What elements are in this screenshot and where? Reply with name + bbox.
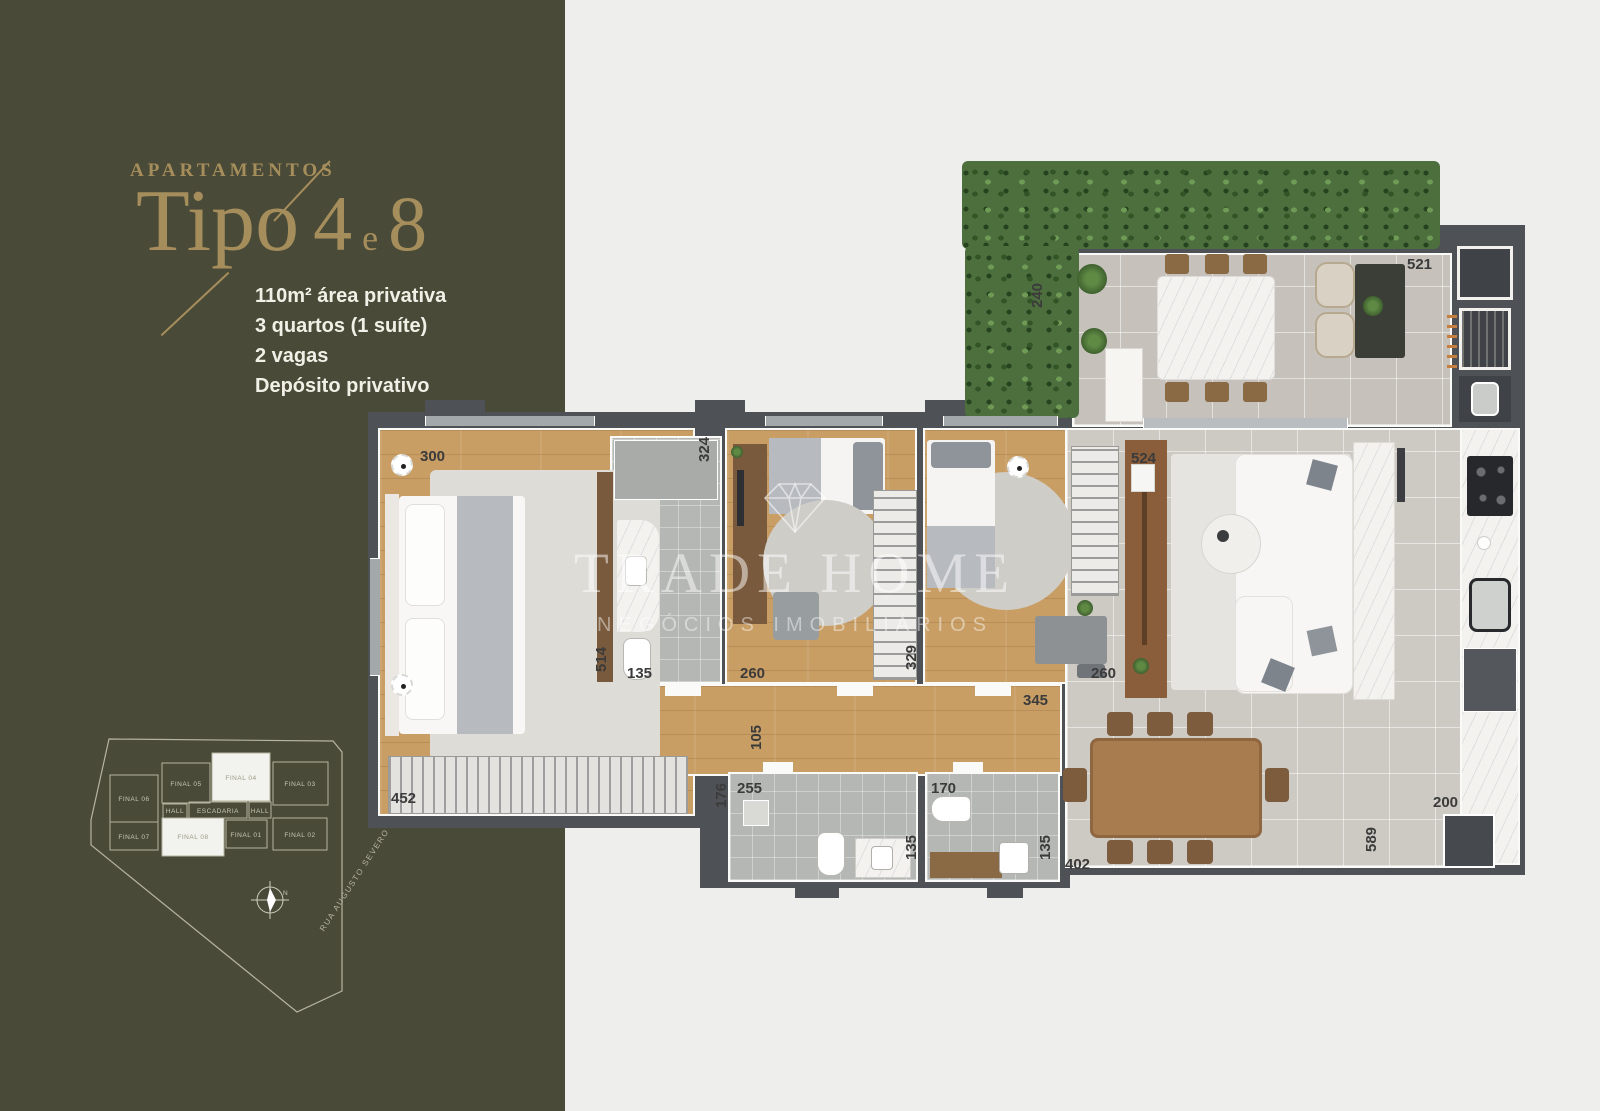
lounge-chair — [1315, 262, 1355, 308]
wardrobe-run — [388, 756, 688, 814]
keyplan-hall-label: HALL — [251, 808, 269, 815]
shower-head — [743, 800, 769, 826]
desk — [1035, 616, 1107, 664]
dimension-label: 345 — [1023, 692, 1048, 709]
bench — [773, 592, 819, 640]
window-bedroom-3 — [943, 416, 1058, 426]
dimension-label: 300 — [420, 448, 445, 465]
keyplan-hall-label: HALL — [166, 808, 184, 815]
plant-icon — [1081, 328, 1107, 354]
bed-headboard — [385, 494, 399, 736]
terrace-chair — [1165, 382, 1189, 402]
keyplan-stairs-label: ESCADARIA — [197, 808, 239, 815]
hedge-planter-top — [962, 161, 1440, 249]
dimension-label: 176 — [713, 783, 730, 808]
dimension-label: 260 — [740, 665, 765, 682]
plant-icon — [1077, 264, 1107, 294]
hedge-planter-left — [965, 246, 1079, 418]
floor-plan: TRADE HOME NEGÓCIOS IMOBILIÁRIOS 3003245… — [365, 160, 1525, 890]
dining-chair — [1265, 768, 1289, 802]
oven-cabinet — [1463, 648, 1517, 712]
terrace-chair — [1205, 254, 1229, 274]
dining-table — [1090, 738, 1262, 838]
dimension-label: 135 — [627, 665, 652, 682]
keyplan-unit-label: FINAL 07 — [118, 834, 149, 841]
window-suite-side — [370, 558, 380, 676]
terrace-table — [1157, 276, 1275, 380]
wall-stub — [425, 400, 485, 414]
wall-stub — [695, 400, 745, 414]
toilet — [931, 796, 971, 822]
plant-icon — [1363, 296, 1383, 316]
dining-chair — [1063, 768, 1087, 802]
wall-stub — [795, 886, 839, 898]
fireplace-strip — [1397, 448, 1405, 502]
dimension-label: 105 — [748, 725, 765, 750]
accent-diagonal-line-bottom — [161, 272, 230, 336]
sideboard — [1353, 442, 1395, 700]
keyplan-unit-label: FINAL 05 — [170, 781, 201, 788]
ceiling-fan-icon — [391, 454, 413, 476]
dining-chair — [1107, 840, 1133, 864]
terrace-chair — [1243, 382, 1267, 402]
dimension-label: 521 — [1407, 256, 1432, 273]
keyplan-unit-label: FINAL 01 — [230, 832, 261, 839]
dimension-label: 514 — [593, 647, 610, 672]
sink — [625, 556, 647, 586]
dimension-label: 135 — [903, 835, 920, 860]
wall-stub — [987, 886, 1023, 898]
keyplan-unit-label: FINAL 03 — [284, 781, 315, 788]
door-bathroom-2 — [953, 762, 983, 772]
window-suite — [425, 416, 595, 426]
compass-icon: N — [251, 881, 289, 919]
framed-art — [1131, 464, 1155, 492]
dimension-label: 200 — [1433, 794, 1458, 811]
table-decor — [1217, 530, 1229, 542]
dining-chair — [1147, 712, 1173, 736]
door-bathroom-social — [763, 762, 793, 772]
dimension-label: 135 — [1037, 835, 1054, 860]
dimension-label: 329 — [903, 645, 920, 670]
dimension-label: 524 — [1131, 450, 1156, 467]
ceiling-fan-icon — [1007, 456, 1029, 478]
sink — [871, 846, 893, 870]
pillow — [405, 504, 445, 606]
bed-blanket — [457, 496, 513, 734]
kitchen-sink — [1469, 578, 1511, 632]
page: APARTAMENTOS Tipo 4 e 8 110m² área priva… — [0, 0, 1600, 1111]
service-table — [1105, 348, 1143, 422]
plant-icon — [1133, 658, 1149, 674]
grill — [1459, 308, 1511, 370]
dimension-label: 452 — [391, 790, 416, 807]
plant-icon — [731, 446, 743, 458]
terrace-chair — [1165, 254, 1189, 274]
window-bedroom-2 — [765, 416, 883, 426]
utility-sink — [1471, 382, 1499, 416]
dimension-label: 402 — [1065, 856, 1090, 873]
title-word: Tipo — [136, 178, 299, 266]
door-suite — [665, 684, 701, 696]
vanity-counter — [930, 852, 1002, 878]
dimension-label: 240 — [1029, 283, 1046, 308]
storage-box — [1457, 246, 1513, 300]
dining-chair — [1187, 840, 1213, 864]
plant-icon — [1077, 600, 1093, 616]
tv — [737, 470, 744, 526]
cooktop — [1467, 456, 1513, 516]
door-bedroom-3 — [975, 684, 1011, 696]
dimension-label: 255 — [737, 780, 762, 797]
pillow — [405, 618, 445, 720]
dimension-label: 589 — [1363, 827, 1380, 852]
keyplan-unit-label: FINAL 02 — [284, 832, 315, 839]
dining-chair — [1147, 840, 1173, 864]
dimension-label: 170 — [931, 780, 956, 797]
title-number-a: 4 — [313, 185, 352, 263]
ceiling-fan-icon — [391, 674, 413, 696]
compass-north-label: N — [283, 890, 288, 897]
pillow — [931, 442, 991, 468]
lounge-chair — [1315, 312, 1355, 358]
skewers — [1447, 310, 1457, 368]
door-bedroom-2 — [837, 684, 873, 696]
sliding-door-terrace — [1143, 418, 1348, 428]
dining-chair — [1187, 712, 1213, 736]
appliance — [1443, 814, 1495, 868]
plate — [1477, 536, 1491, 550]
keyplan-unit-label: FINAL 08 — [177, 834, 208, 841]
bed-blanket — [927, 526, 995, 588]
keyplan-unit-label: FINAL 06 — [118, 796, 149, 803]
terrace-chair — [1243, 254, 1267, 274]
tv — [1142, 490, 1147, 645]
sink — [999, 842, 1029, 874]
dimension-label: 324 — [696, 437, 713, 462]
coffee-table — [1201, 514, 1261, 574]
dining-chair — [1107, 712, 1133, 736]
closet-shelves — [1071, 446, 1119, 596]
dimension-label: 260 — [1091, 665, 1116, 682]
sofa-pillow — [1307, 626, 1338, 657]
keyplan-unit-label: FINAL 04 — [225, 775, 256, 782]
toilet — [817, 832, 845, 876]
terrace-chair — [1205, 382, 1229, 402]
